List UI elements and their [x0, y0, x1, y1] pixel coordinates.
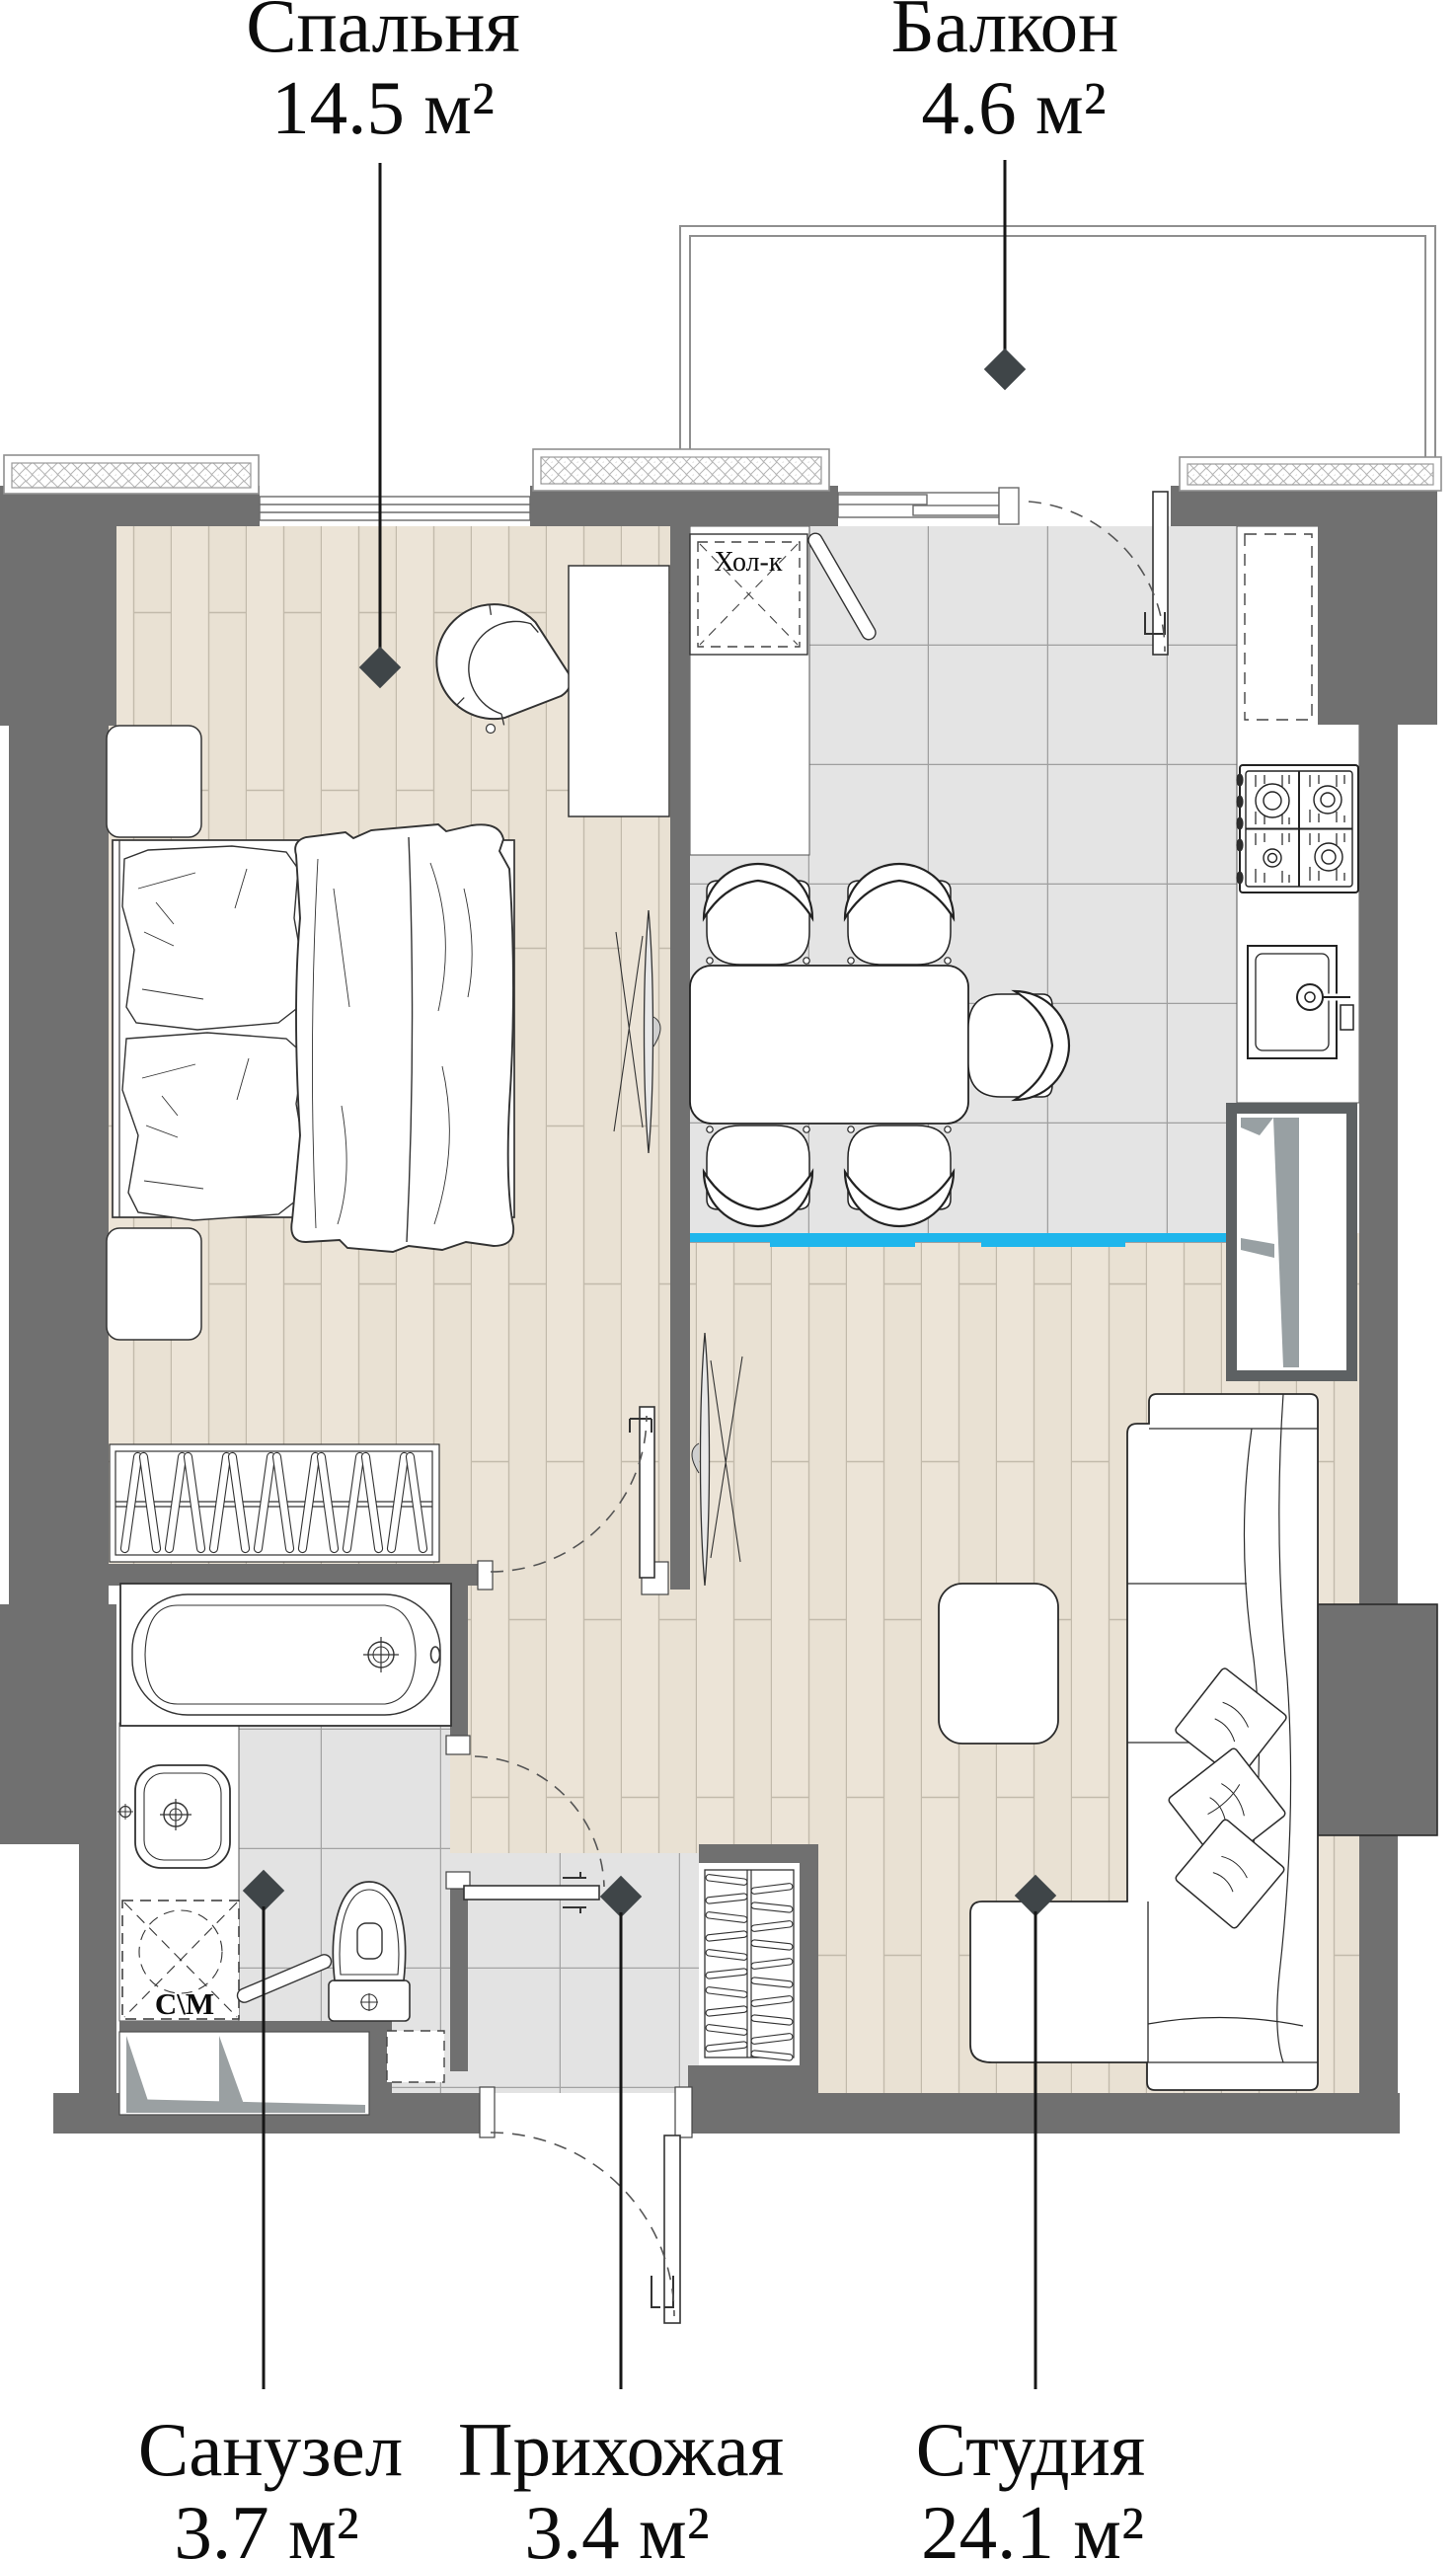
svg-text:С\М: С\М [155, 1986, 214, 2021]
svg-text:24.1 м²: 24.1 м² [921, 2490, 1144, 2561]
svg-text:Санузел: Санузел [138, 2407, 403, 2492]
svg-text:3.4 м²: 3.4 м² [524, 2490, 709, 2561]
svg-text:Прихожая: Прихожая [458, 2407, 784, 2492]
svg-text:Балкон: Балкон [891, 0, 1119, 68]
svg-text:Хол-к: Хол-к [715, 547, 783, 578]
svg-text:Спальня: Спальня [246, 0, 520, 68]
svg-text:3.7 м²: 3.7 м² [174, 2490, 358, 2561]
svg-text:14.5 м²: 14.5 м² [271, 65, 495, 150]
svg-text:Студия: Студия [916, 2407, 1145, 2492]
svg-text:4.6 м²: 4.6 м² [921, 65, 1106, 150]
